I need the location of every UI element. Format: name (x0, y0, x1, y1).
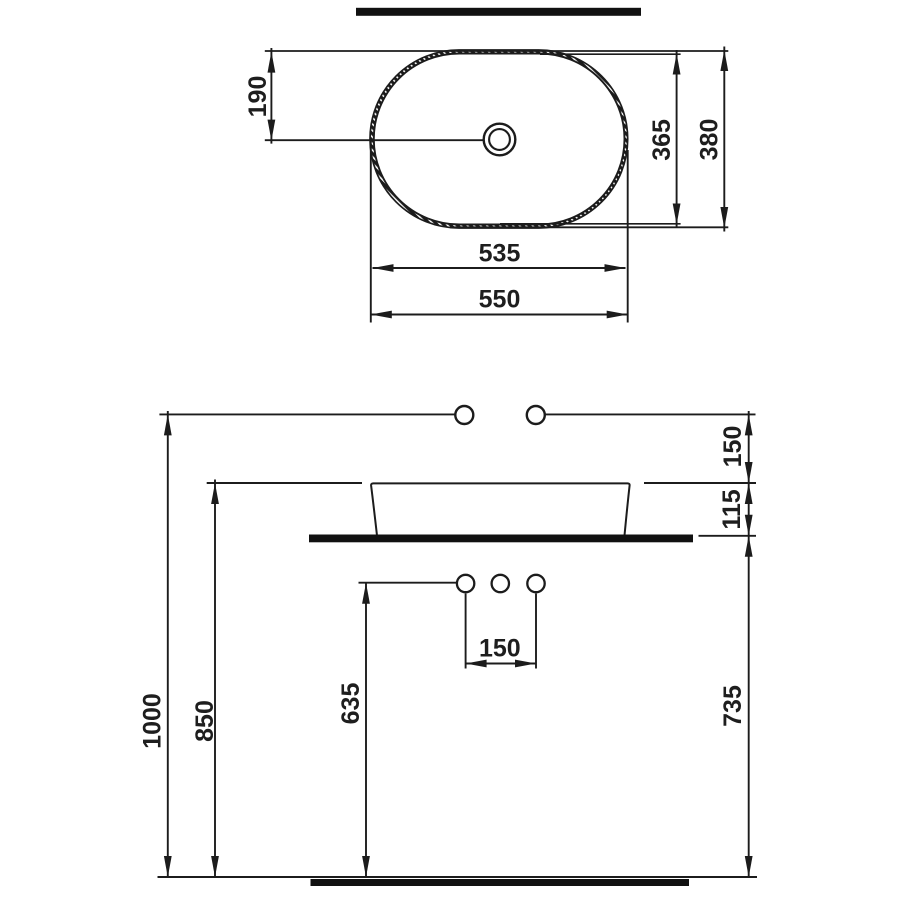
svg-text:635: 635 (337, 683, 365, 725)
svg-text:365: 365 (648, 119, 676, 161)
svg-text:850: 850 (191, 700, 219, 742)
svg-text:190: 190 (244, 76, 272, 118)
svg-text:550: 550 (479, 286, 521, 314)
svg-text:115: 115 (718, 489, 746, 529)
svg-text:535: 535 (479, 240, 521, 268)
svg-text:380: 380 (695, 119, 723, 161)
svg-text:150: 150 (719, 426, 747, 468)
svg-text:150: 150 (479, 635, 521, 663)
svg-text:1000: 1000 (138, 693, 166, 749)
svg-text:735: 735 (719, 685, 747, 727)
